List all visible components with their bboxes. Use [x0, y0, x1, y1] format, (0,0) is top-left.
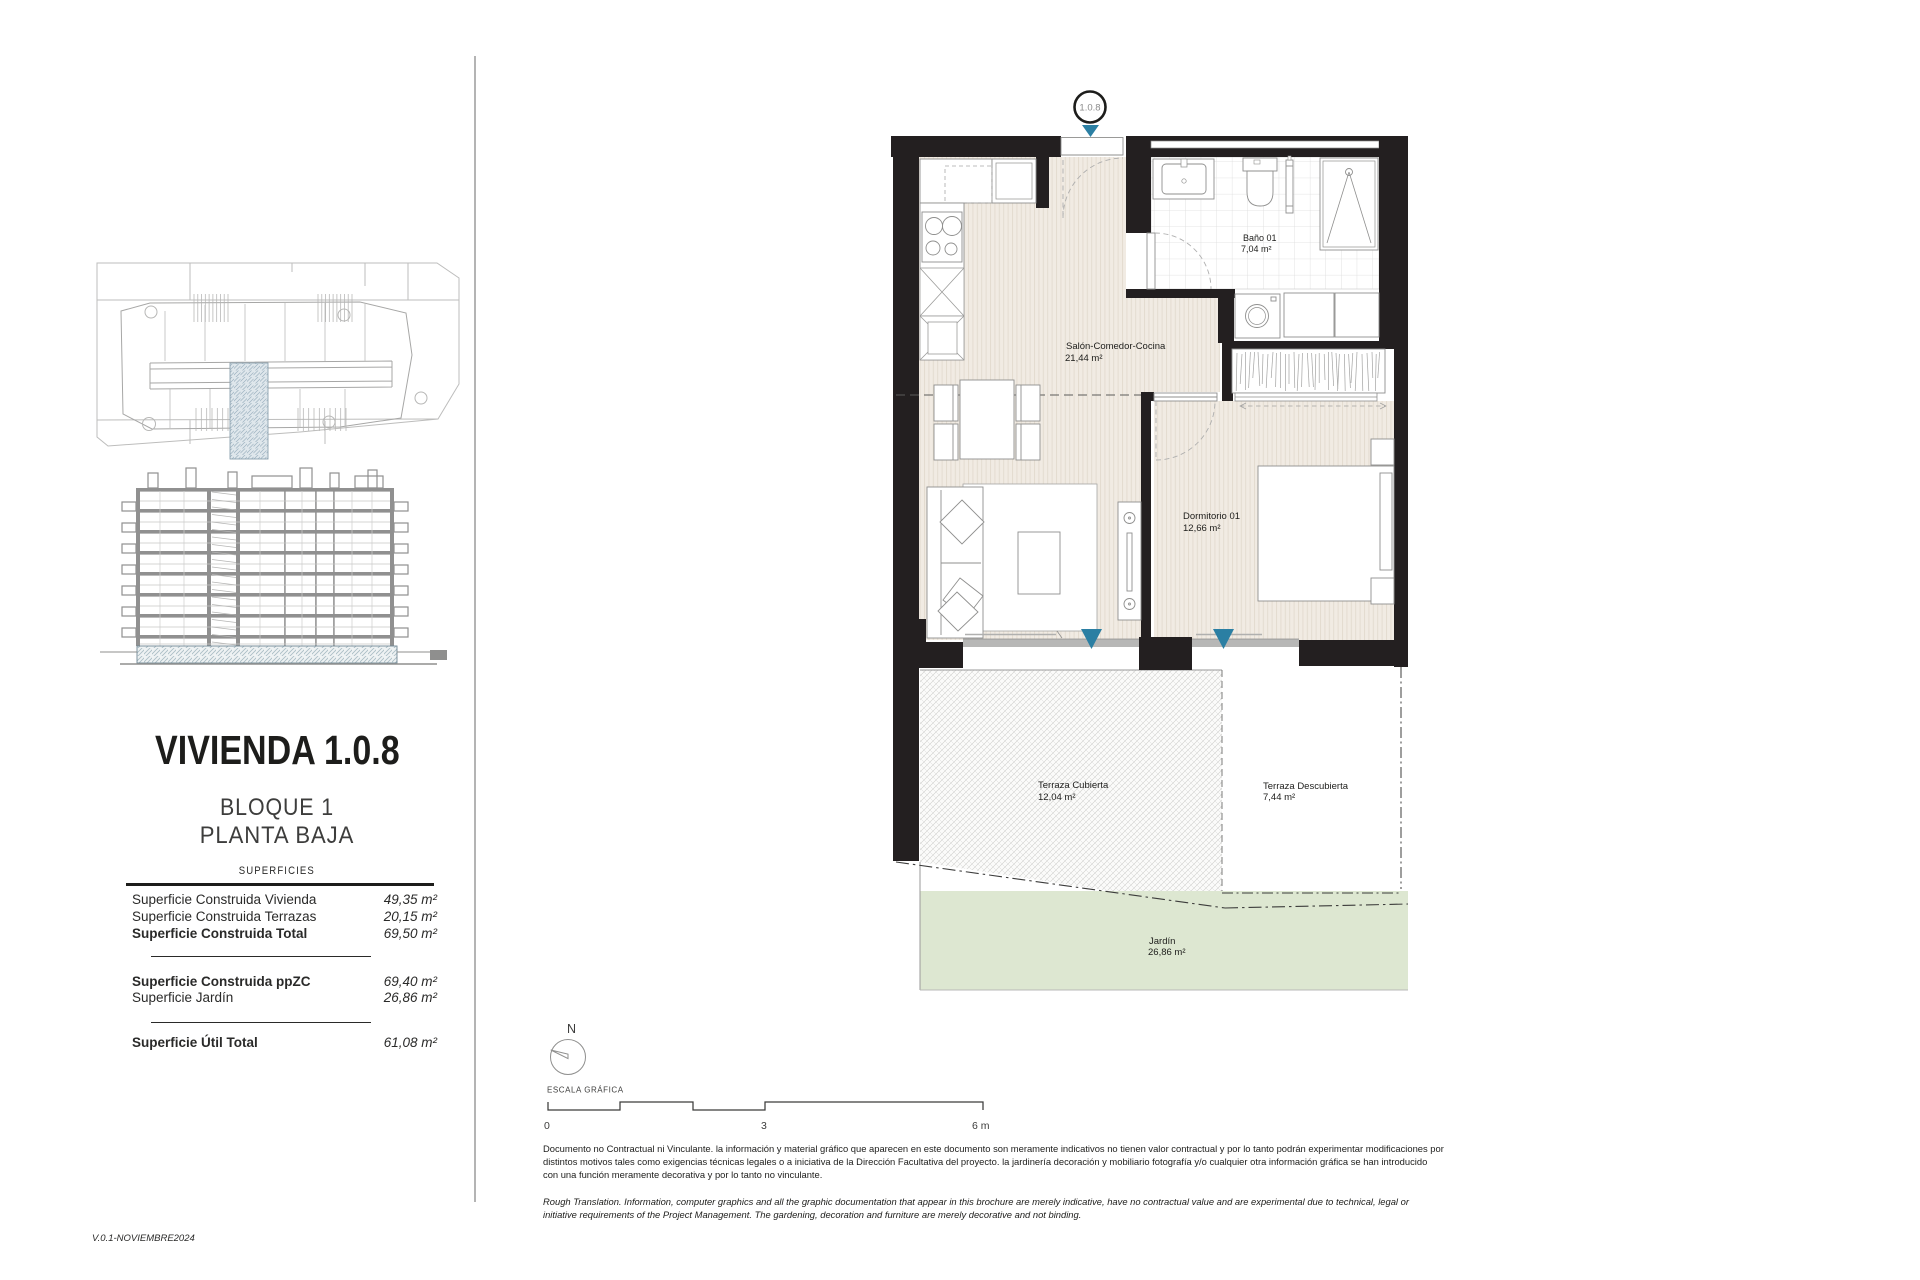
svg-text:Terraza Cubierta: Terraza Cubierta [1038, 780, 1109, 791]
svg-text:21,44 m²: 21,44 m² [1065, 353, 1103, 364]
svg-text:Jardín: Jardín [1149, 936, 1175, 947]
svg-text:3: 3 [761, 1120, 767, 1132]
svg-text:12,66 m²: 12,66 m² [1183, 523, 1221, 534]
svg-text:Baño 01: Baño 01 [1243, 233, 1277, 243]
svg-text:Dormitorio 01: Dormitorio 01 [1183, 511, 1240, 522]
svg-text:Salón-Comedor-Cocina: Salón-Comedor-Cocina [1066, 341, 1166, 352]
svg-text:12,04 m²: 12,04 m² [1038, 792, 1076, 803]
svg-text:26,86 m²: 26,86 m² [1148, 947, 1186, 958]
svg-text:Terraza Descubierta: Terraza Descubierta [1263, 781, 1349, 792]
svg-text:ESCALA GRÁFICA: ESCALA GRÁFICA [547, 1086, 624, 1095]
svg-text:N: N [567, 1022, 576, 1036]
svg-text:6 m: 6 m [972, 1120, 990, 1132]
svg-text:0: 0 [544, 1120, 550, 1132]
svg-text:7,44 m²: 7,44 m² [1263, 792, 1295, 803]
svg-text:1.0.8: 1.0.8 [1079, 103, 1100, 114]
svg-text:7,04 m²: 7,04 m² [1241, 244, 1272, 254]
